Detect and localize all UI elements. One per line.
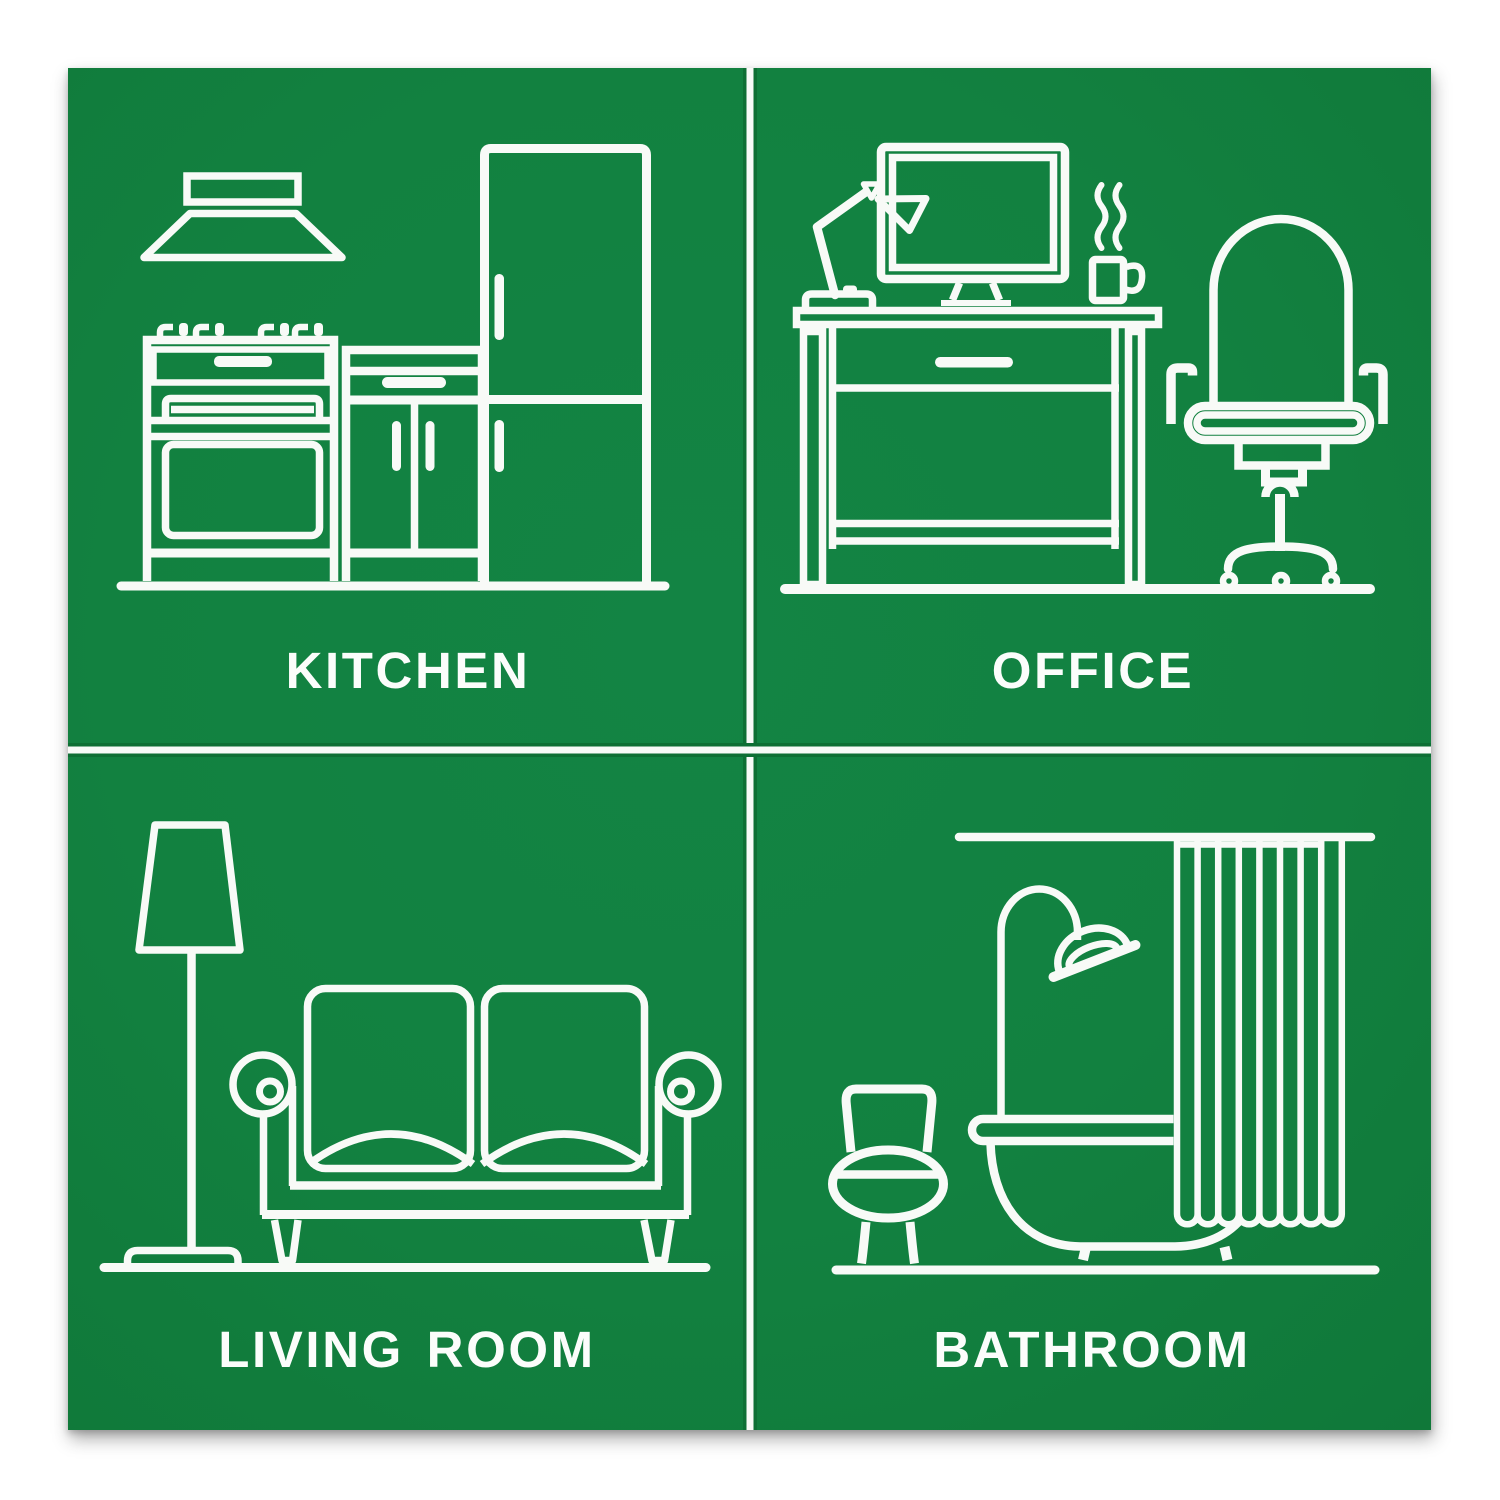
svg-text:OFFICE: OFFICE <box>992 642 1195 699</box>
svg-text:BATHROOM: BATHROOM <box>933 1321 1250 1378</box>
svg-text:LIVING ROOM: LIVING ROOM <box>218 1321 595 1378</box>
svg-text:KITCHEN: KITCHEN <box>286 642 531 699</box>
